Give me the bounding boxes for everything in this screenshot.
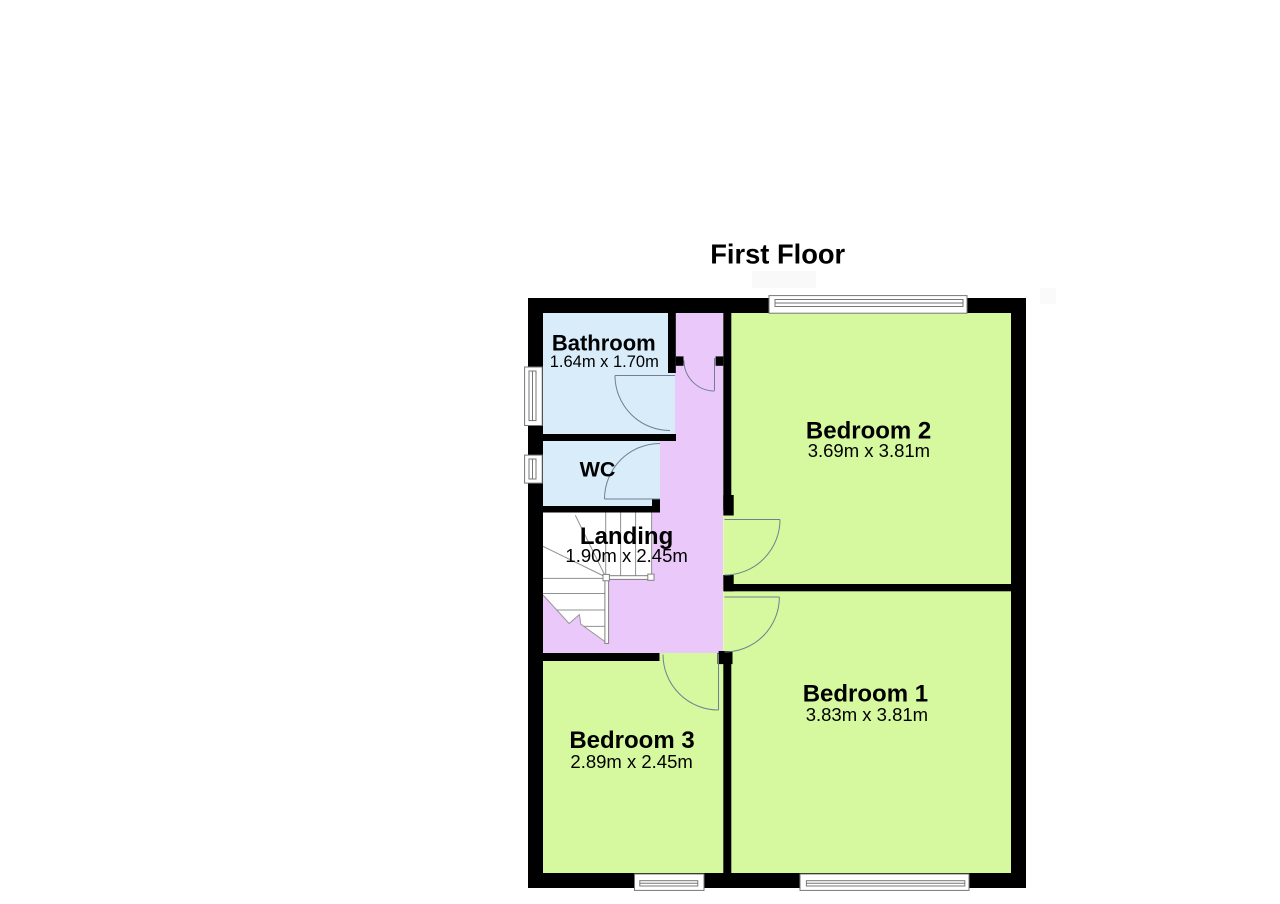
- svg-text:WC: WC: [580, 458, 616, 482]
- svg-text:Bathroom: Bathroom: [552, 331, 656, 356]
- svg-text:2.89m x 2.45m: 2.89m x 2.45m: [570, 751, 692, 772]
- svg-text:1.64m x 1.70m: 1.64m x 1.70m: [550, 353, 659, 371]
- svg-text:3.83m x 3.81m: 3.83m x 3.81m: [806, 704, 928, 725]
- svg-text:1.90m x 2.45m: 1.90m x 2.45m: [565, 545, 687, 566]
- svg-text:Bedroom 3: Bedroom 3: [569, 727, 694, 754]
- svg-text:First Floor: First Floor: [710, 238, 845, 269]
- svg-text:3.69m x 3.81m: 3.69m x 3.81m: [808, 440, 930, 461]
